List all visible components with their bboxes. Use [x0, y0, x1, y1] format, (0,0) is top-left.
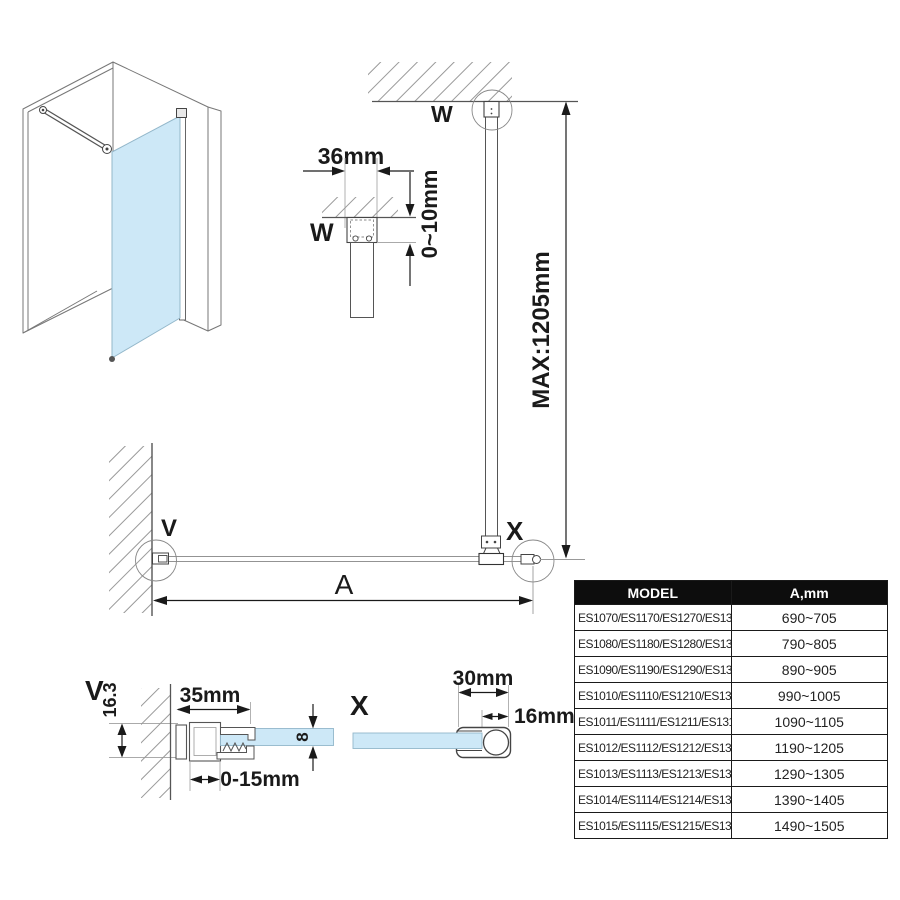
model-cell: ES1080/ES1180/ES1280/ES1380/ES1580 — [575, 631, 732, 657]
model-cell: ES1015/ES1115/ES1215/ES1315/ES1515 — [575, 813, 732, 839]
support-bar-wall-anchor-dot — [42, 109, 45, 112]
a-cell: 1290~1305 — [731, 761, 888, 787]
depth-arrow-up — [118, 724, 127, 736]
support-bar-detail — [351, 243, 374, 318]
installation-diagram: V X W MAX:1205mm A 36mm — [0, 0, 900, 900]
dim-span-a: A — [153, 566, 533, 614]
ceiling-hatch-detail — [322, 197, 398, 217]
model-cell: ES1013/ES1113/ES1213/ES1313/ES1513 — [575, 761, 732, 787]
dim-max-height: MAX:1205mm — [528, 102, 585, 560]
table-row: ES1012/ES1112/ES1212/ES1312/ES15121190~1… — [575, 735, 888, 761]
profile-width-label: 35mm — [180, 684, 241, 707]
model-cell: ES1090/ES1190/ES1290/ES1390/ES1590 — [575, 657, 732, 683]
support-bar-socket — [484, 730, 509, 755]
table-row: ES1013/ES1113/ES1213/ES1313/ES15131290~1… — [575, 761, 888, 787]
max-arrow-down — [562, 545, 571, 559]
glass-section-x — [353, 733, 482, 749]
table-row: ES1080/ES1180/ES1280/ES1380/ES1580790~80… — [575, 631, 888, 657]
table-row: ES1070/ES1170/ES1270/ES1370/ES1570690~70… — [575, 605, 888, 631]
max-arrow-up — [562, 102, 571, 116]
table-row: ES1010/ES1110/ES1210/ES1310/ES1510990~10… — [575, 683, 888, 709]
right-wall-outer-edge — [208, 107, 221, 331]
table-row: ES1014/ES1114/ES1214/ES1314/ES15141390~1… — [575, 787, 888, 813]
thick-arrow-down — [309, 716, 318, 729]
model-cell: ES1012/ES1112/ES1212/ES1312/ES1512 — [575, 735, 732, 761]
a-span-label: A — [335, 569, 354, 600]
glass-bottom-fitting — [109, 356, 115, 362]
table-row: ES1090/ES1190/ES1290/ES1390/ES1590890~90… — [575, 657, 888, 683]
a-cell: 890~905 — [731, 657, 888, 683]
adjust-arrow-left — [190, 776, 202, 784]
profile-wall-part — [176, 725, 187, 759]
wall-hatch-detail — [141, 688, 170, 798]
ceiling-hatch — [368, 62, 512, 101]
w-top-label: W — [431, 101, 453, 127]
bar-diameter-label: 16mm — [514, 705, 575, 728]
bracket-screw — [366, 236, 371, 241]
column-header-a: A,mm — [731, 581, 888, 605]
model-cell: ES1070/ES1170/ES1270/ES1370/ES1570 — [575, 605, 732, 631]
wall-profile-top-fitting — [177, 109, 187, 118]
model-cell: ES1014/ES1114/ES1214/ES1314/ES1514 — [575, 787, 732, 813]
bar-arrow-right — [498, 713, 509, 720]
ceiling-bracket-dot — [491, 113, 493, 115]
bar-bottom-fitting-screw — [494, 541, 497, 544]
table-row: ES1015/ES1115/ES1215/ES1315/ES15151490~1… — [575, 813, 888, 839]
v-plan-label: V — [161, 515, 177, 542]
a-cell: 1090~1105 — [731, 709, 888, 735]
table-row: ES1011/ES1111/ES1211/ES1311/ES15111090~1… — [575, 709, 888, 735]
a-cell: 1390~1405 — [731, 787, 888, 813]
gap-arrow-down — [406, 204, 415, 217]
bracket-width-label: 36mm — [318, 143, 384, 169]
w-section-label: W — [310, 219, 334, 247]
wall-hatch — [109, 446, 152, 613]
ceiling-bracket-detail — [347, 218, 377, 243]
ceiling-clearance-label: 0~10mm — [417, 170, 442, 259]
width-arrow-right — [237, 705, 251, 714]
bar-bottom-fitting-screw — [486, 541, 489, 544]
clamp-width-label: 30mm — [453, 667, 514, 690]
a-cell: 690~705 — [731, 605, 888, 631]
gap-arrow-up — [406, 244, 415, 257]
profile-adjustment-label: 0-15mm — [220, 768, 299, 791]
a-cell: 790~805 — [731, 631, 888, 657]
end-clamp-fitting-circle — [533, 556, 541, 564]
x-plan-label: X — [506, 516, 524, 546]
bar-bottom-neck — [484, 548, 501, 554]
adjust-arrow-right — [208, 776, 220, 784]
support-bar-glass-connector-dot — [106, 148, 109, 151]
a-cell: 1190~1205 — [731, 735, 888, 761]
glass-plan — [168, 557, 521, 562]
a-cell: 990~1005 — [731, 683, 888, 709]
glass-panel — [112, 116, 180, 358]
x-section-detail: X 30mm 16mm — [350, 667, 575, 758]
max-height-label: MAX:1205mm — [528, 251, 555, 408]
profile-bottom-lip — [217, 746, 254, 759]
w-section-detail: 36mm W 0~10mm — [303, 143, 442, 318]
profile-depth-label: 16.3 — [100, 682, 120, 717]
bracket-screw — [353, 236, 358, 241]
a-arrow-right — [519, 596, 533, 605]
table-header-row: MODEL A,mm — [575, 581, 888, 605]
profile-spring — [223, 743, 246, 751]
a-arrow-left — [153, 596, 167, 605]
model-cell: ES1010/ES1110/ES1210/ES1310/ES1510 — [575, 683, 732, 709]
bar-bottom-fitting — [482, 536, 501, 548]
support-bar-elevation — [486, 110, 498, 536]
isometric-overview — [23, 62, 221, 362]
v-section-detail: V 16.3 35mm 8 0-15mm — [85, 675, 334, 800]
left-wall — [23, 62, 113, 333]
glass-thickness-label: 8 — [293, 732, 312, 741]
x-section-label: X — [350, 690, 369, 721]
ceiling-bracket-dot — [491, 108, 493, 110]
thick-arrow-up — [309, 746, 318, 759]
depth-arrow-down — [118, 746, 127, 758]
model-cell: ES1011/ES1111/ES1211/ES1311/ES1511 — [575, 709, 732, 735]
model-table: MODEL A,mm ES1070/ES1170/ES1270/ES1370/E… — [574, 580, 888, 839]
bar-arrow-left — [482, 713, 493, 720]
column-header-model: MODEL — [575, 581, 732, 605]
a-cell: 1490~1505 — [731, 813, 888, 839]
glass-clamp-block — [479, 554, 504, 565]
